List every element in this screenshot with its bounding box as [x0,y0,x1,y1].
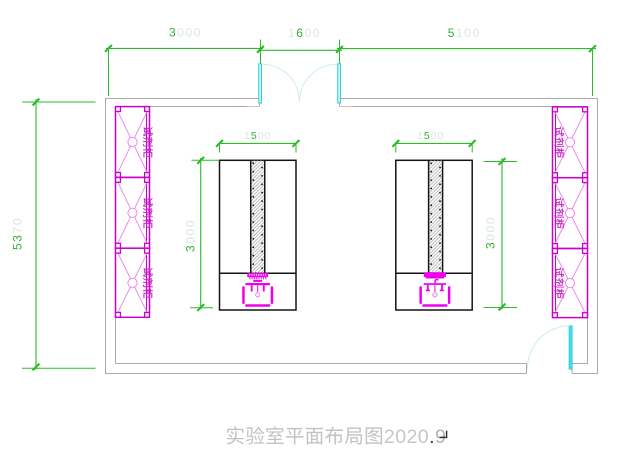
svg-text:1600: 1600 [288,26,321,40]
svg-text:3000: 3000 [169,26,202,40]
svg-text:3000: 3000 [184,219,198,252]
svg-text:3000: 3000 [484,216,498,249]
svg-text:1500: 1500 [417,130,444,142]
svg-text:2020.9: 2020.9 [384,426,446,448]
svg-text:5100: 5100 [448,26,481,40]
svg-text:5370: 5370 [11,217,25,250]
svg-text:1500: 1500 [244,130,271,142]
